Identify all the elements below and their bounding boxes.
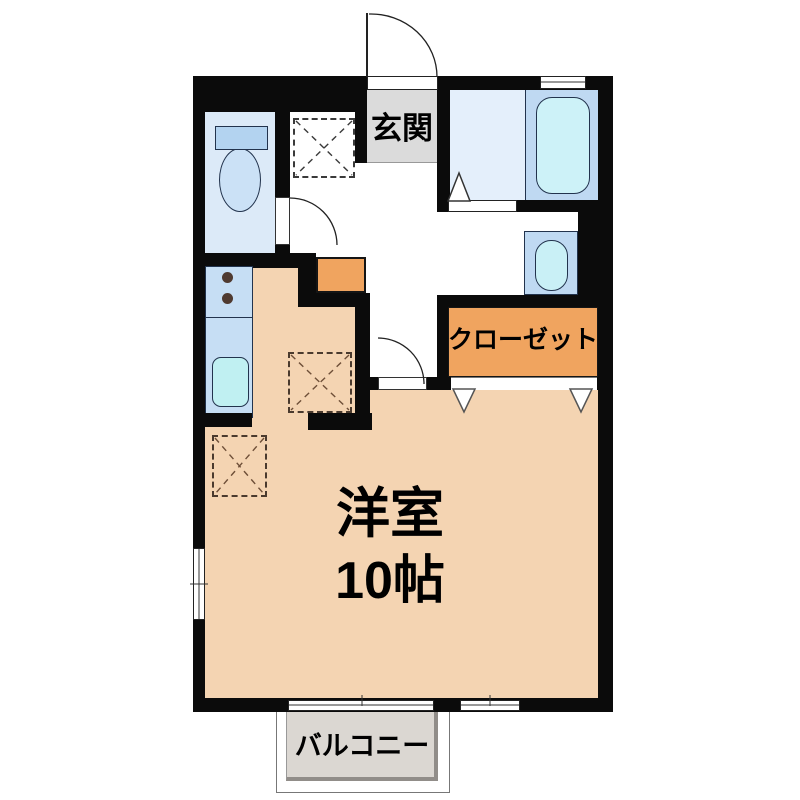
wall-top-right [438,76,613,90]
bathroom-doorway [448,200,517,212]
wall-corner-stub [298,253,316,307]
stove-burner-icon [222,293,233,304]
utility-space-square-hall [293,118,355,178]
toilet-tank-icon [215,126,268,150]
window-left-wall [193,548,205,620]
kitchen-sink-icon [212,357,249,407]
window-balcony-sliding [288,700,434,711]
room-name-label: 洋室 [280,484,500,544]
wall-partition-vertical [355,293,370,430]
balcony-label: バルコニー [286,728,438,764]
wall-toilet-right-upper [275,106,290,197]
floor-plan: 玄関 クローゼット 洋室 10帖 [0,0,800,800]
wall-partition-horizontal [308,413,372,430]
toilet-door-swing-icon [290,198,337,245]
room-door-leaf [378,377,427,390]
toilet-bowl-icon [219,148,261,212]
washbasin-icon [535,240,568,291]
toilet-door-leaf [275,197,290,245]
wall-kitchen-stub [203,413,252,427]
closet-label: クローゼット [448,314,598,366]
wall-washbasin-right [578,200,613,307]
shoe-cabinet-block [316,257,366,293]
window-bottom-small [460,700,520,711]
entrance-door-swing-icon [367,13,437,77]
closet-opening [451,377,597,390]
kitchen-divider-line [205,317,253,318]
utility-space-square-room [212,435,267,497]
bathtub-icon [536,97,590,194]
entrance-doorway [367,76,438,90]
wall-right [598,76,613,712]
bathroom-window [540,76,586,89]
stove-burner-icon [222,272,233,283]
utility-space-square-kitchen [288,352,352,413]
room-size-label: 10帖 [280,552,500,610]
entrance-label: 玄関 [364,106,440,152]
